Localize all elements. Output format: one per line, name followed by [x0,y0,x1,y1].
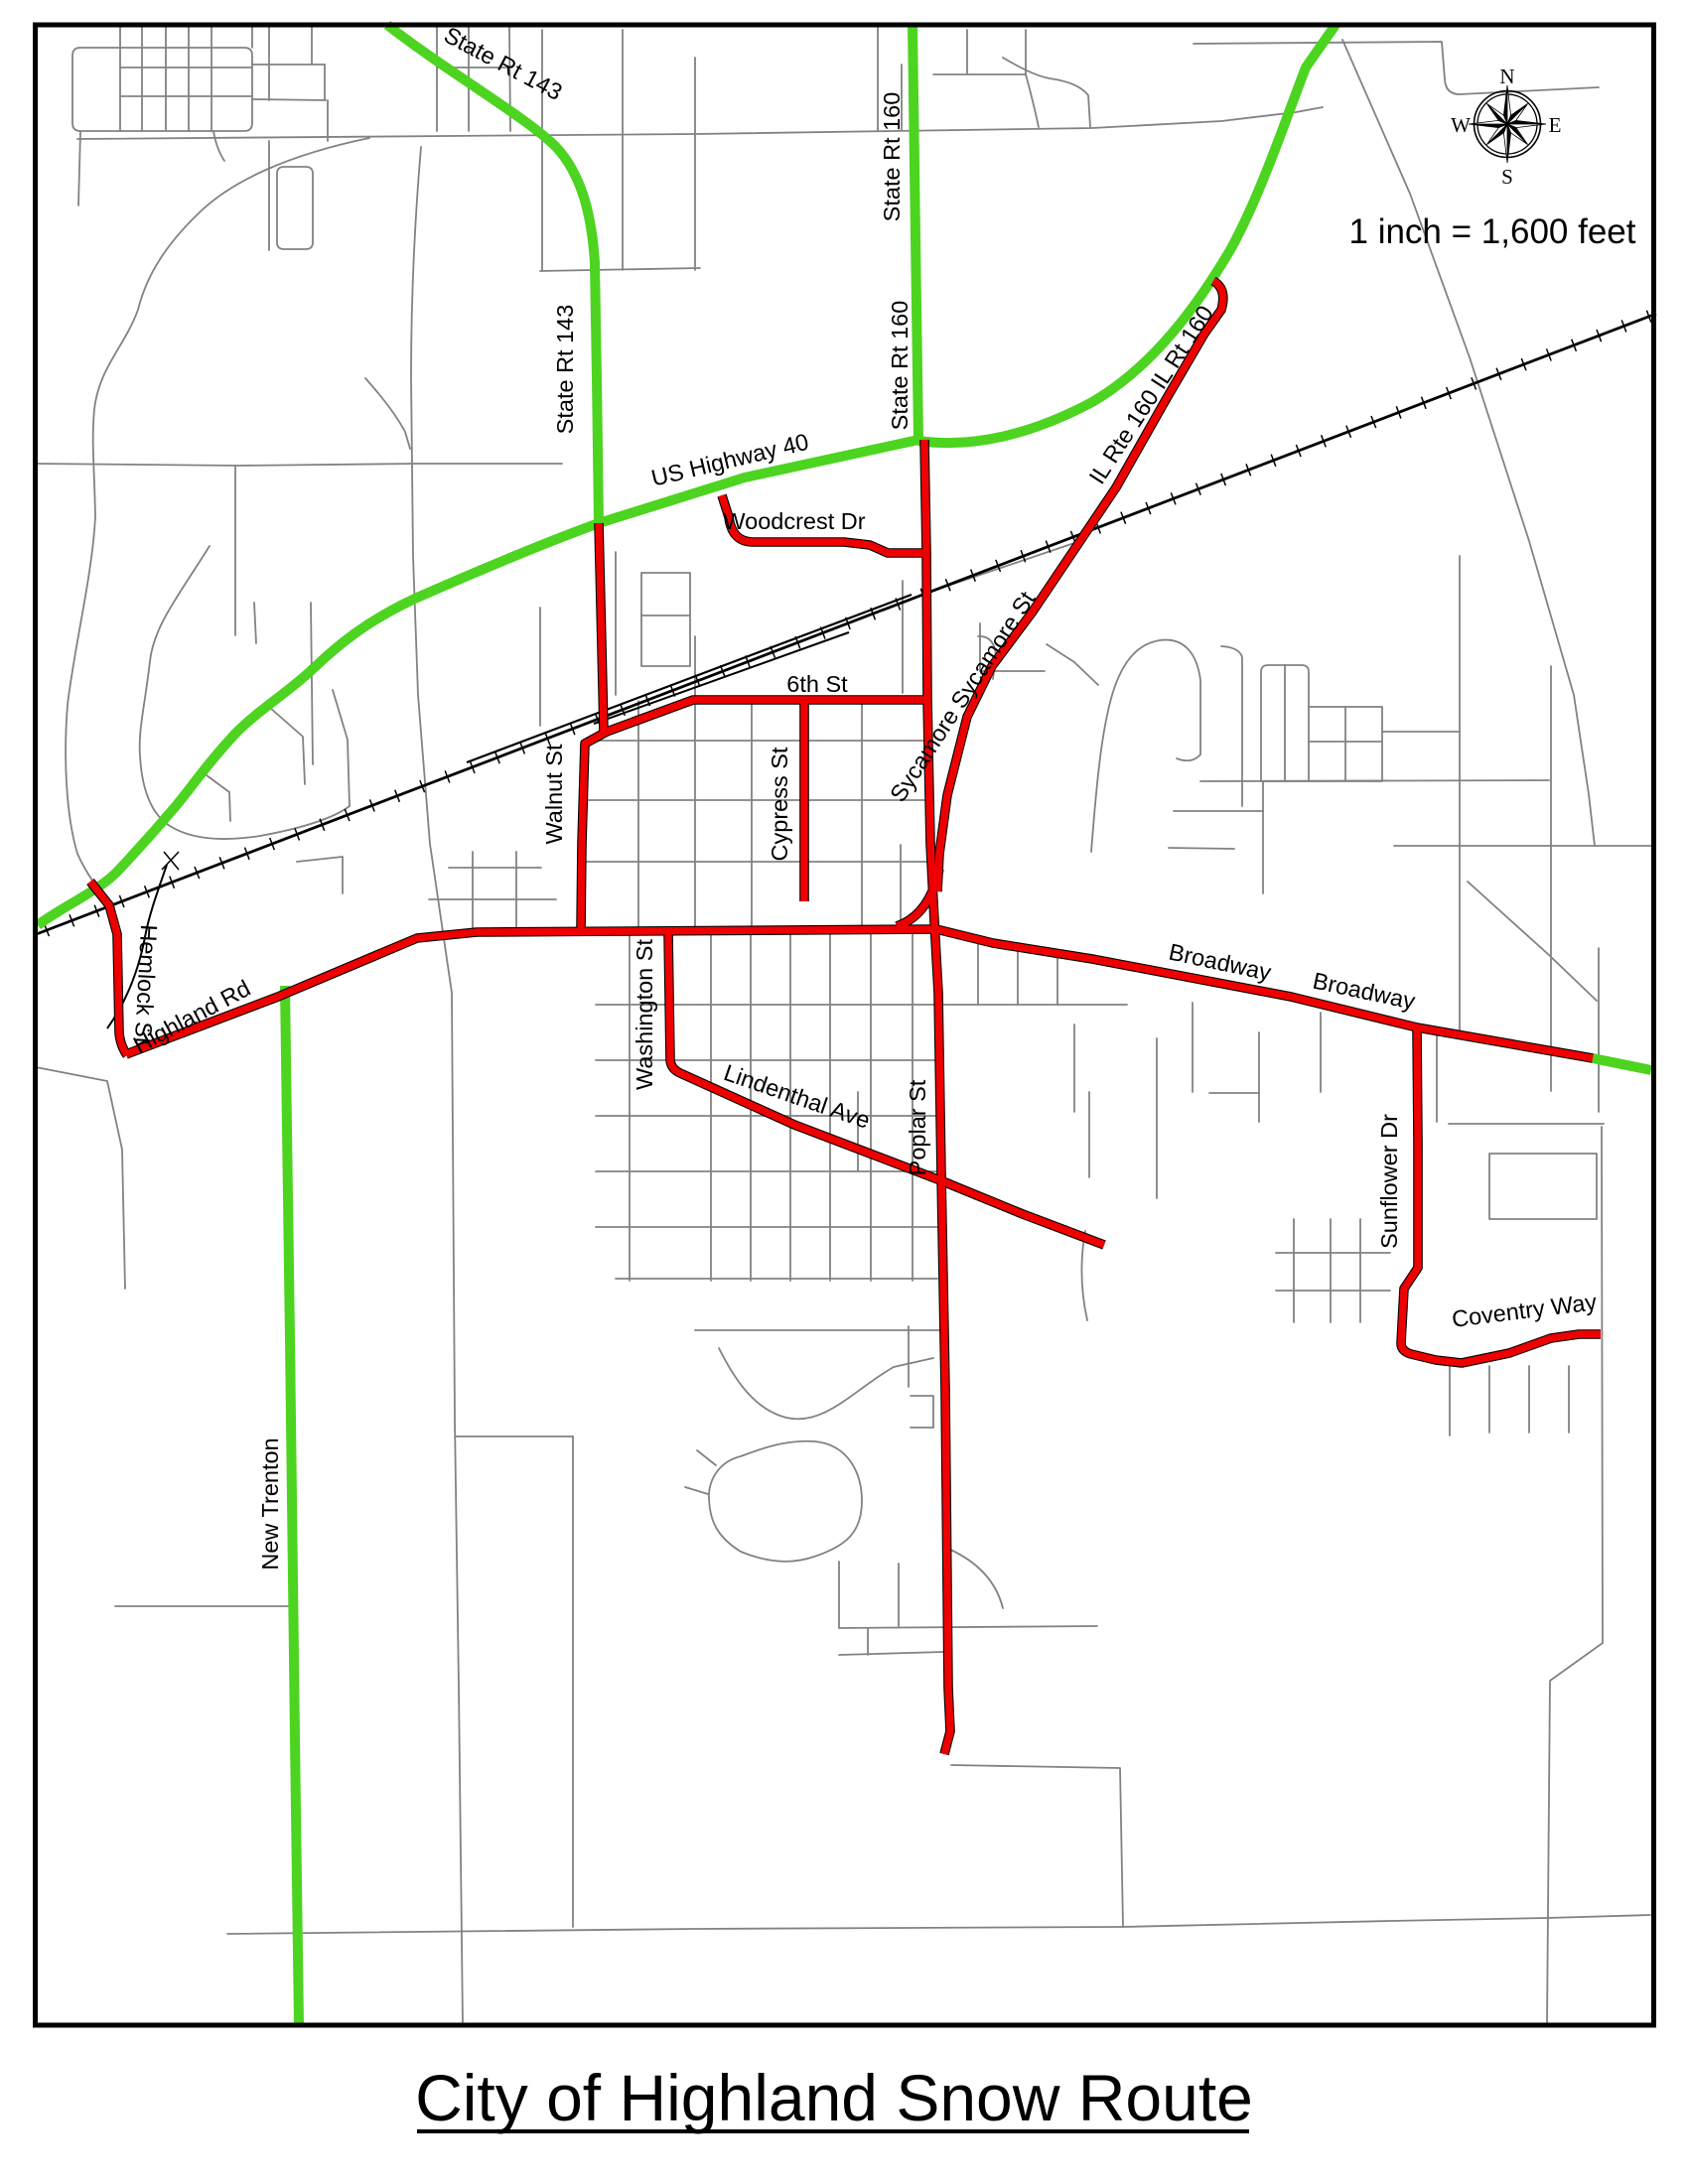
svg-text:W: W [1451,113,1471,137]
svg-text:Washington St: Washington St [632,939,657,1090]
svg-text:Walnut St: Walnut St [541,744,567,844]
svg-text:City of Highland Snow Route: City of Highland Snow Route [415,2061,1253,2134]
svg-text:6th St: 6th St [786,671,848,697]
svg-text:E: E [1549,113,1562,137]
svg-text:New Trenton: New Trenton [257,1437,283,1570]
svg-text:Poplar St: Poplar St [905,1079,930,1175]
svg-text:State Rt 143: State Rt 143 [552,305,578,435]
svg-text:1 inch = 1,600 feet: 1 inch = 1,600 feet [1349,212,1636,251]
svg-text:Sunflower Dr: Sunflower Dr [1376,1114,1402,1249]
svg-text:Cypress St: Cypress St [767,747,792,861]
svg-text:Woodcrest Dr: Woodcrest Dr [723,508,865,534]
svg-text:State Rt 160: State Rt 160 [879,92,905,222]
svg-text:S: S [1501,165,1513,189]
svg-text:State Rt 160: State Rt 160 [887,301,913,431]
svg-text:N: N [1499,65,1514,88]
